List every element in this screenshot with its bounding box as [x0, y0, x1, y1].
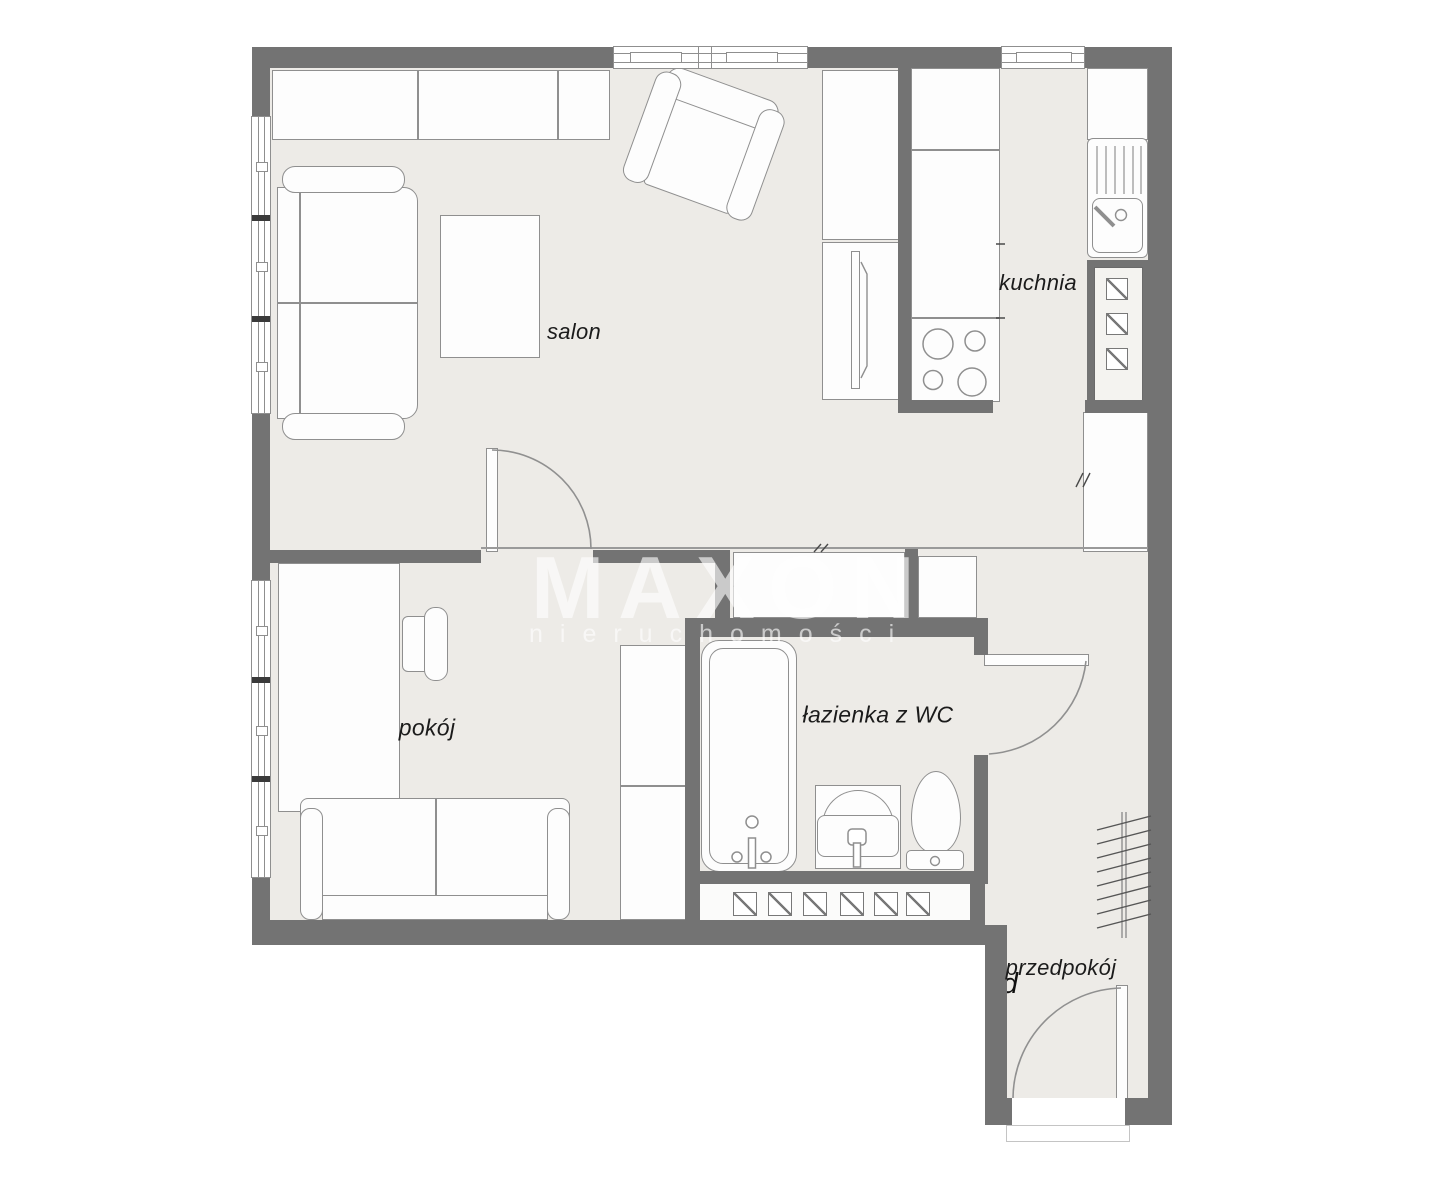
wall-entry-right-stub — [1125, 1098, 1172, 1125]
wall-bath-top — [692, 618, 988, 637]
stove — [911, 318, 1000, 402]
bathtub-inner — [709, 648, 789, 864]
window-divider — [252, 215, 270, 221]
sofa-armrest — [282, 413, 405, 440]
bed-armrest — [300, 808, 323, 920]
shaft-hatch-square — [803, 892, 827, 916]
room-label-przedpokoj: przedpokój — [1006, 955, 1117, 981]
wall-niche-stub — [905, 548, 918, 628]
window-divider — [252, 677, 270, 683]
bed-sofa — [300, 798, 570, 920]
wardrobe — [620, 645, 687, 920]
exterior-mask — [0, 945, 1005, 1200]
bed-armrest — [547, 808, 570, 920]
room-label-lazienka: łazienka z WC — [803, 702, 954, 729]
coffee-table — [440, 215, 540, 358]
wardrobe-divider — [620, 785, 687, 787]
window-divider — [252, 776, 270, 782]
salon-cabinet-row — [272, 70, 610, 140]
tv-icon — [851, 251, 860, 389]
hall-wardrobe — [1083, 412, 1148, 552]
wall-bath-bottom — [692, 871, 988, 884]
kitchen-counter — [911, 150, 1000, 318]
door-leaf-entry — [1116, 985, 1128, 1100]
sofa-armrest — [282, 166, 405, 193]
door-leaf-pokoj — [486, 448, 498, 552]
window-divider — [252, 316, 270, 322]
wall-right — [1148, 47, 1172, 1125]
washbasin — [817, 815, 899, 857]
shaft-hatch-square — [1106, 348, 1128, 370]
wall-pokoj-top-right — [593, 550, 730, 563]
desk — [278, 563, 400, 812]
toilet-tank — [906, 850, 964, 870]
bed-front — [322, 895, 548, 920]
shaft-hatch-square — [768, 892, 792, 916]
niche-cabinet-small — [918, 556, 977, 618]
shaft-hatch-square — [733, 892, 757, 916]
desk-chair-back — [424, 607, 448, 681]
wall-bath-right-jog — [970, 884, 985, 927]
room-label-pokoj: pokój — [399, 715, 455, 742]
wall-bottom — [252, 920, 985, 945]
shaft-hatch-square — [874, 892, 898, 916]
floor-plan: salon kuchnia pokój łazienka z WC przedp… — [0, 0, 1445, 1200]
cabinet-divider — [417, 70, 419, 140]
tv-wall-cabinet — [822, 70, 899, 240]
door-leaf-bathroom — [984, 654, 1089, 666]
window-salon-top — [613, 46, 808, 69]
kitchen-counter — [1087, 68, 1148, 140]
wall-pokoj-top-left — [256, 550, 481, 563]
bed-cushion-line — [435, 798, 437, 897]
wall-salon-kitchen — [898, 68, 911, 413]
shaft-hatch-square — [840, 892, 864, 916]
window-kitchen-top — [1001, 46, 1085, 69]
wall-entry-left-stub — [985, 1098, 1012, 1125]
niche-cabinet-long — [733, 552, 905, 618]
wall-pokoj-bath — [685, 618, 700, 945]
wall-hall-left — [985, 925, 1007, 1103]
cabinet-divider — [557, 70, 559, 140]
entry-opening — [1012, 1098, 1125, 1125]
wall-bath-right-upper — [974, 618, 988, 655]
sofa-back-line — [299, 187, 301, 419]
shaft-hatch-square — [1106, 278, 1128, 300]
window-salon-left — [251, 116, 271, 414]
wall-kitchen-shaft-bottom — [1085, 400, 1150, 413]
wall-kitchen-bottom — [898, 400, 993, 413]
kitchen-cabinet — [911, 68, 1000, 150]
sink-basin — [1092, 198, 1143, 253]
room-label-salon: salon — [547, 319, 601, 345]
shaft-hatch-square — [906, 892, 930, 916]
tv-stand — [822, 242, 899, 400]
wall-bath-right-lower — [974, 755, 988, 884]
sofa — [277, 166, 419, 440]
shaft-hatch-square — [1106, 313, 1128, 335]
room-boundary-line — [481, 547, 1148, 549]
entry-step — [1006, 1125, 1130, 1142]
room-label-kuchnia: kuchnia — [999, 270, 1077, 296]
window-pokoj-left — [251, 580, 271, 878]
